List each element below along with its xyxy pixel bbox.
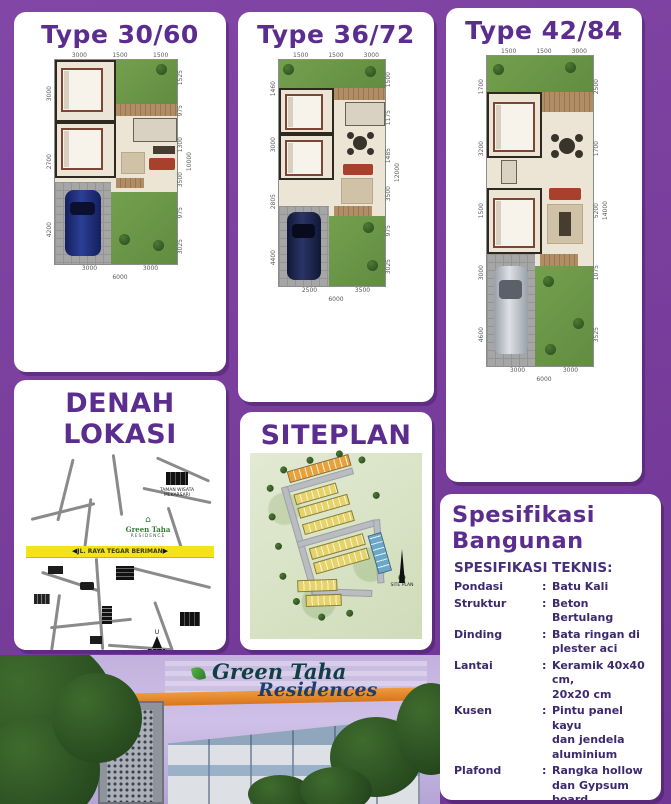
deck-area (540, 92, 593, 112)
north-indicator: U PETA LOKASI (132, 630, 182, 650)
dimension-label: 1500 (536, 49, 551, 55)
siteplan-caption: SITE PLAN (388, 583, 416, 588)
patio-table-icon (559, 138, 575, 154)
map-road (50, 594, 61, 650)
landmark-icon (34, 594, 50, 604)
spec-value: Batu Kali (552, 580, 651, 595)
chair-icon (575, 134, 583, 142)
dimension-label: 3200 (479, 141, 485, 156)
car-icon (65, 190, 101, 256)
dimension-label: 3000 (72, 53, 87, 59)
dimension-label: 3025 (178, 239, 184, 254)
siteplan-title: SITEPLAN (240, 412, 432, 451)
dims-left: 17003200150030004600 (478, 56, 487, 366)
driveway (279, 206, 329, 286)
dimension-label: 3525 (594, 327, 600, 342)
dimension-label: 4600 (479, 327, 485, 342)
dimension-label: 1175 (386, 110, 392, 125)
dimension-label: 6000 (536, 377, 551, 383)
bedroom-2 (55, 122, 116, 178)
tree-icon (266, 484, 275, 493)
dims-right: 25001700520010753525 (593, 56, 602, 366)
chair-icon (367, 132, 374, 139)
dimension-label: 3000 (364, 53, 379, 59)
floorplan-36-72: 150015003000 1460300028054400 (238, 51, 434, 304)
arrow-right-icon: ▶ (163, 548, 168, 555)
dimension-label: 1500 (328, 53, 343, 59)
dimension-label: 3000 (271, 137, 277, 152)
tree-icon (153, 240, 164, 251)
spec-list: Pondasi:Batu KaliStruktur:Beton Bertulan… (454, 580, 651, 800)
dimension-label: 1500 (386, 72, 392, 87)
plot-30-60 (55, 60, 177, 264)
map-title: DENAH LOKASI (14, 380, 226, 450)
dims-right-total: 14000 (602, 56, 611, 366)
deck-area (540, 254, 578, 266)
dimension-label: 975 (178, 105, 184, 116)
chair-icon (367, 148, 374, 155)
chair-icon (551, 134, 559, 142)
spec-value: Rangka hollow dan Gypsum board tinggi 3,… (552, 764, 651, 800)
tree-icon (279, 572, 288, 581)
bed-icon (493, 198, 535, 248)
housing-cluster (248, 450, 407, 637)
dimension-label: 10000 (187, 152, 193, 171)
dimension-label: 3025 (386, 259, 392, 274)
dimension-label: 2500 (302, 288, 317, 294)
north-arrow-icon (399, 549, 405, 583)
spec-row: Plafond:Rangka hollow dan Gypsum board t… (454, 764, 651, 800)
dimension-label: 1500 (112, 53, 127, 59)
dimension-label: 3000 (47, 86, 53, 101)
dimension-label: 1485 (386, 148, 392, 163)
spec-row: Lantai:Keramik 40x40 cm, 20x20 cm (454, 659, 651, 703)
factory-icon (166, 472, 188, 485)
logo-text: Green Taha (120, 525, 176, 534)
tree-icon (543, 276, 554, 287)
plan-card-type-42-84: Type 42/84 150015003000 1700320015003000… (446, 8, 642, 482)
dims-bottom: 30003000 (491, 366, 597, 375)
dims-right-total: 12000 (394, 60, 403, 286)
tree-icon (156, 64, 167, 75)
car-icon (494, 266, 528, 354)
tree-icon (545, 344, 556, 355)
driveway (487, 254, 535, 366)
logo-subtext: RESIDENCE (120, 534, 176, 539)
dims-left: 300027004200 (46, 60, 55, 264)
spec-colon: : (542, 659, 552, 703)
landmark-icon (180, 612, 200, 626)
spec-row: Kusen:Pintu panel kayu dan jendela alumi… (454, 704, 651, 762)
brand-name-line2: Residences (258, 679, 377, 701)
dimension-label: 3000 (572, 49, 587, 55)
map-road (50, 618, 132, 630)
tree-icon (283, 64, 294, 75)
dimension-label: 6000 (112, 275, 127, 281)
bedroom-2 (279, 134, 334, 180)
spec-label: Struktur (454, 597, 542, 626)
landmark-caption: MEKARSARI (152, 494, 202, 499)
dimension-label: 3000 (82, 266, 97, 272)
tree-icon (573, 318, 584, 329)
bed-icon (285, 94, 323, 130)
bedroom-1 (487, 92, 542, 158)
rug (341, 178, 373, 204)
spec-colon: : (542, 580, 552, 595)
map-caption: PETA LOKASI (132, 648, 182, 650)
dimension-label: 1525 (178, 70, 184, 85)
garden-area (279, 60, 385, 88)
chair-icon (551, 150, 559, 158)
chair-icon (575, 150, 583, 158)
dimension-label: 14000 (603, 201, 609, 220)
plan-title: Type 36/72 (238, 12, 434, 49)
spec-row: Dinding:Bata ringan di plester aci (454, 628, 651, 657)
tree-icon (292, 597, 301, 606)
plan-title: Type 30/60 (14, 12, 226, 49)
plan-title: Type 42/84 (446, 8, 642, 45)
tree-icon (372, 491, 381, 500)
dimension-label: 1460 (271, 81, 277, 96)
dining-table-icon (353, 136, 367, 150)
dims-left: 1460300028054400 (270, 60, 279, 286)
landmark-icon (90, 636, 102, 644)
tv-cabinet (559, 212, 571, 236)
dimension-label: 12000 (395, 163, 401, 182)
dims-top: 150015003000 (283, 51, 389, 60)
spec-colon: : (542, 597, 552, 626)
sofa-icon (549, 188, 581, 200)
location-map: ◀ JL. RAYA TEGAR BERIMAN ▶ TAMAN WISATA … (24, 454, 216, 650)
dimension-label: 1500 (153, 53, 168, 59)
dimension-label: 2805 (271, 194, 277, 209)
dimension-label: 975 (178, 207, 184, 218)
garden-area (116, 60, 177, 104)
spec-label: Dinding (454, 628, 542, 657)
dimension-label: 1075 (594, 265, 600, 280)
brochure-page: { "colors": { "background": "#7a3e9d", "… (0, 0, 671, 804)
house-block-yellow (297, 579, 337, 592)
siteplan-drawing: SITE PLAN (250, 453, 422, 639)
dims-bottom: 25003500 (283, 286, 389, 295)
dimension-label: 1300 (178, 137, 184, 152)
tree-icon (493, 64, 504, 75)
dimension-label: 3000 (143, 266, 158, 272)
landmark-icon (102, 606, 112, 624)
dims-right-total: 10000 (186, 60, 195, 264)
landmark-icon (116, 566, 134, 580)
spec-colon: : (542, 704, 552, 762)
dims-bottom-total: 6000 (283, 295, 389, 304)
tree-icon (358, 456, 367, 465)
deck-area (116, 178, 144, 188)
sofa-icon (343, 164, 373, 175)
dims-top: 300015001500 (59, 51, 181, 60)
dimension-label: 1500 (501, 49, 516, 55)
tv-cabinet (153, 146, 175, 154)
tree-icon (367, 260, 378, 271)
tree-icon (345, 609, 354, 618)
car-icon (287, 212, 321, 280)
tree-foliage (52, 673, 142, 763)
landmark-icon (48, 566, 63, 574)
siteplan-north-indicator: SITE PLAN (388, 549, 416, 588)
sofa-icon (149, 158, 175, 170)
rug (121, 152, 145, 174)
project-logo-marker: ⌂ Green Taha RESIDENCE (120, 516, 176, 539)
dimension-label: 3000 (563, 368, 578, 374)
dimension-label: 1500 (479, 203, 485, 218)
deck-area (334, 88, 385, 100)
tree-icon (317, 613, 326, 622)
spec-value: Keramik 40x40 cm, 20x20 cm (552, 659, 651, 703)
spec-label: Kusen (454, 704, 542, 762)
map-road (112, 454, 124, 516)
dimension-label: 3000 (479, 265, 485, 280)
plot-36-72 (279, 60, 385, 286)
floorplan-42-84: 150015003000 17003200150030004600 (446, 47, 642, 384)
bedroom-1 (55, 60, 116, 122)
entrance-photo: Green Taha Residences (0, 655, 440, 804)
tree-icon (565, 62, 576, 73)
garden-area (111, 192, 177, 264)
dimension-label: 1700 (594, 141, 600, 156)
dims-top: 150015003000 (491, 47, 597, 56)
garden-area (487, 56, 593, 92)
dimension-label: 3500 (386, 186, 392, 201)
landmark-icon (80, 582, 94, 590)
kitchen-area (345, 102, 385, 126)
dimension-label: 5200 (594, 203, 600, 218)
chair-icon (347, 148, 354, 155)
dims-bottom-total: 6000 (59, 273, 181, 282)
road-name: JL. RAYA TEGAR BERIMAN (77, 548, 162, 555)
spec-value: Pintu panel kayu dan jendela aluminium (552, 704, 651, 762)
tree-icon (274, 542, 283, 551)
bed-icon (285, 140, 323, 176)
spec-label: Plafond (454, 764, 542, 800)
dimension-label: 6000 (328, 297, 343, 303)
kitchen-area (133, 118, 177, 142)
highlighted-road: ◀ JL. RAYA TEGAR BERIMAN ▶ (26, 546, 214, 557)
north-arrow-icon (152, 636, 162, 648)
plot-42-84 (487, 56, 593, 366)
deck-area (116, 104, 177, 116)
location-map-card: DENAH LOKASI ◀ JL. RAYA TEGAR BERIMAN ▶ … (14, 380, 226, 650)
specification-card: Spesifikasi Bangunan SPESIFIKASI TEKNIS:… (440, 494, 661, 800)
dimension-label: 2500 (594, 79, 600, 94)
landmark-taman-mekarsari: TAMAN WISATA MEKARSARI (152, 470, 202, 499)
dims-right: 1525975130035009753025 (177, 60, 186, 264)
house-block-yellow (305, 594, 341, 607)
garden-area (329, 216, 385, 286)
dims-right: 15001175148535009753025 (385, 60, 394, 286)
dimension-label: 1500 (293, 53, 308, 59)
spec-label: Lantai (454, 659, 542, 703)
dimension-label: 3000 (510, 368, 525, 374)
dims-bottom: 30003000 (59, 264, 181, 273)
dimension-label: 4200 (47, 222, 53, 237)
bed-icon (61, 128, 103, 170)
bedroom-1 (279, 88, 334, 134)
plan-card-type-30-60: Type 30/60 300015001500 300027004200 (14, 12, 226, 372)
deck-area (334, 206, 372, 216)
wardrobe-area (501, 160, 517, 184)
floorplan-30-60: 300015001500 300027004200 (14, 51, 226, 282)
plan-card-type-36-72: Type 36/72 150015003000 1460300028054400 (238, 12, 434, 402)
driveway (55, 182, 111, 264)
dimension-label: 975 (386, 225, 392, 236)
tree-icon (365, 66, 376, 77)
dimension-label: 3500 (178, 172, 184, 187)
dimension-label: 3500 (355, 288, 370, 294)
spec-row: Struktur:Beton Bertulang (454, 597, 651, 626)
north-label: U (132, 630, 182, 636)
dims-bottom-total: 6000 (491, 375, 597, 384)
spec-subtitle: SPESIFIKASI TEKNIS: (454, 560, 661, 576)
house-icon: ⌂ (120, 516, 176, 525)
spec-label: Pondasi (454, 580, 542, 595)
dimension-label: 1700 (479, 79, 485, 94)
map-road (129, 566, 211, 589)
chair-icon (347, 132, 354, 139)
spec-row: Pondasi:Batu Kali (454, 580, 651, 595)
tree-icon (268, 513, 277, 522)
siteplan-card: SITEPLAN (240, 412, 432, 650)
spec-value: Bata ringan di plester aci (552, 628, 651, 657)
tree-icon (119, 234, 130, 245)
dimension-label: 4400 (271, 250, 277, 265)
spec-value: Beton Bertulang (552, 597, 651, 626)
tree-icon (363, 222, 374, 233)
spec-colon: : (542, 628, 552, 657)
bedroom-2 (487, 188, 542, 254)
spec-colon: : (542, 764, 552, 800)
bed-icon (493, 102, 535, 152)
bed-icon (61, 68, 103, 112)
dimension-label: 2700 (47, 154, 53, 169)
spec-title: Spesifikasi Bangunan (440, 494, 661, 554)
garden-area (535, 266, 593, 366)
